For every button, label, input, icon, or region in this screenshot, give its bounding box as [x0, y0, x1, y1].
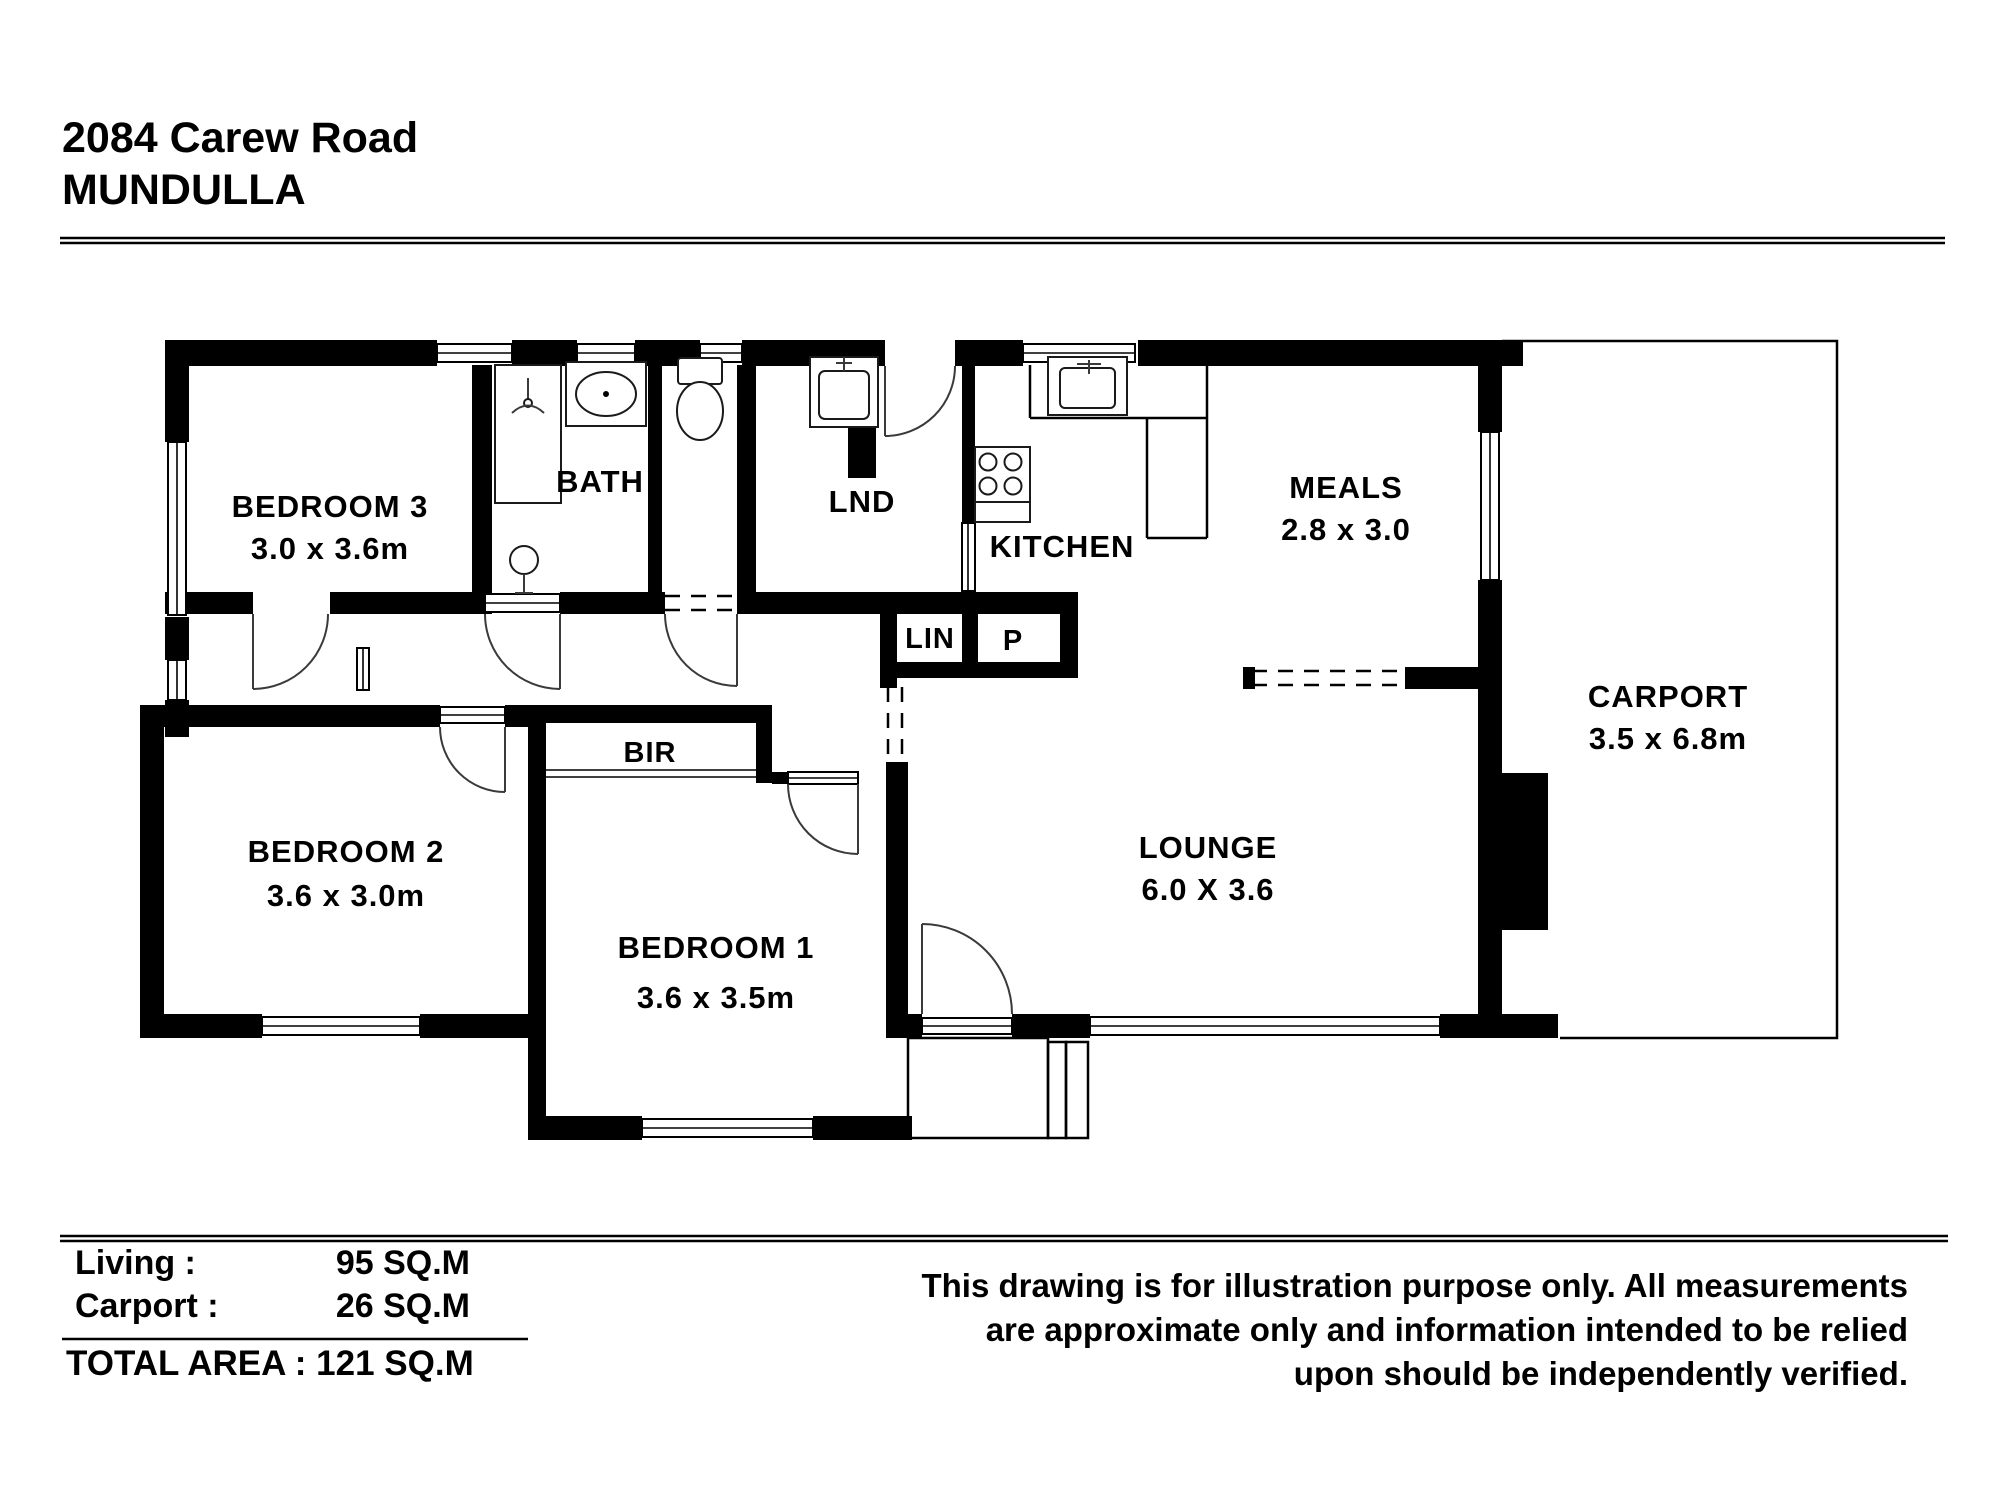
porch-step [1048, 1042, 1066, 1138]
window [168, 660, 186, 700]
room-label-pantry: P [1003, 625, 1023, 657]
room-label-bedroom1: BEDROOM 1 [618, 930, 815, 965]
wall-segment [813, 1116, 912, 1140]
wall-segment [165, 340, 189, 442]
wall-segment [140, 1014, 262, 1038]
porch-outline [908, 1038, 1048, 1138]
floorplan-canvas: 2084 Carew Road MUNDULLA [0, 0, 2000, 1500]
room-label-lounge: LOUNGE [1139, 830, 1278, 865]
wall-segment [893, 662, 1073, 678]
room-dims-bedroom1: 3.6 x 3.5m [637, 980, 795, 1015]
open-plan-dividers [665, 596, 1405, 762]
threshold [962, 523, 975, 591]
room-dims-bedroom2: 3.6 x 3.0m [267, 878, 425, 913]
stove-icon [975, 447, 1030, 522]
room-label-kitchen: KITCHEN [990, 529, 1135, 564]
carport-pier [1497, 773, 1548, 930]
kitchen-sink-icon [1048, 357, 1127, 415]
wall-segment [1440, 1014, 1558, 1038]
window [642, 1119, 813, 1137]
room-dims-carport: 3.5 x 6.8m [1589, 721, 1747, 756]
room-label-bedroom3: BEDROOM 3 [232, 489, 429, 524]
wall-segment [955, 340, 1023, 366]
wall-segment [1405, 667, 1480, 689]
door-wc [665, 614, 737, 686]
window [1481, 432, 1499, 580]
room-label-lnd: LND [829, 484, 896, 519]
porch-step [1066, 1042, 1088, 1138]
wall-segment [1138, 340, 1523, 366]
wall-segment [737, 592, 1078, 614]
window [262, 1017, 420, 1035]
wall-segment [560, 592, 665, 614]
threshold [485, 594, 560, 612]
door-front-entry [922, 924, 1012, 1014]
carport-area-label: Carport : [75, 1287, 219, 1325]
wall-segment [1478, 340, 1502, 432]
room-dims-lounge: 6.0 X 3.6 [1141, 872, 1274, 907]
wall-segment [140, 705, 440, 727]
room-label-bir: BIR [624, 737, 677, 769]
door-bath [485, 614, 560, 689]
door-bedroom2 [440, 727, 505, 792]
header: 2084 Carew Road MUNDULLA [60, 114, 1945, 243]
window [168, 442, 186, 615]
room-dims-bedroom3: 3.0 x 3.6m [251, 531, 409, 566]
wall-segment [472, 365, 492, 614]
disclaimer-line2: are approximate only and information int… [986, 1311, 1908, 1348]
window [1090, 1017, 1440, 1035]
shower-icon [495, 365, 561, 503]
address-line1: 2084 Carew Road [62, 114, 418, 162]
wall-segment [140, 705, 164, 1038]
threshold [357, 648, 369, 690]
towel-rail-icon [510, 546, 538, 593]
footer: Living : 95 SQ.M Carport : 26 SQ.M TOTAL… [60, 1236, 1948, 1392]
vanity-basin-icon [566, 362, 646, 426]
total-area: TOTAL AREA : 121 SQ.M [66, 1344, 474, 1383]
room-label-lin: LIN [905, 623, 955, 655]
window [437, 344, 512, 362]
wall-segment [330, 592, 472, 614]
room-label-meals: MEALS [1289, 470, 1403, 505]
floorplan-page: 2084 Carew Road MUNDULLA [0, 0, 2000, 1500]
windows [168, 344, 1499, 1137]
wall-segment [420, 1014, 546, 1038]
room-label-bedroom2: BEDROOM 2 [248, 834, 445, 869]
wall-segment [546, 705, 772, 723]
door-laundry-entry [885, 366, 955, 436]
door-bedroom1 [788, 784, 858, 854]
room-labels: BEDROOM 3 3.0 x 3.6m BATH LND KITCHEN ME… [232, 464, 1749, 1015]
wall-segment [737, 365, 756, 614]
room-dims-meals: 2.8 x 3.0 [1281, 512, 1411, 547]
carport-area-value: 26 SQ.M [336, 1287, 470, 1325]
room-label-carport: CARPORT [1588, 679, 1748, 714]
wall-segment [962, 365, 975, 522]
threshold [788, 772, 858, 784]
wall-segment [886, 762, 908, 1038]
wall-segment [1012, 1014, 1090, 1038]
disclaimer-line3: upon should be independently verified. [1294, 1355, 1908, 1392]
wall-segment [528, 705, 546, 1140]
living-area-value: 95 SQ.M [336, 1244, 470, 1282]
threshold [440, 707, 505, 723]
laundry-tub-icon [810, 357, 878, 427]
toilet-icon [677, 358, 723, 440]
disclaimer-line1: This drawing is for illustration purpose… [921, 1267, 1908, 1304]
wall-segment [165, 617, 189, 660]
wall-segment [756, 705, 772, 783]
entry-sill [922, 1018, 1012, 1034]
wall-segment [772, 772, 788, 784]
door-bedroom3 [253, 614, 328, 689]
room-label-bath: BATH [556, 464, 644, 499]
wall-segment [165, 340, 437, 366]
living-area-label: Living : [75, 1244, 196, 1282]
wall-segment [648, 365, 662, 614]
address-line2: MUNDULLA [62, 166, 306, 214]
window [577, 344, 635, 362]
